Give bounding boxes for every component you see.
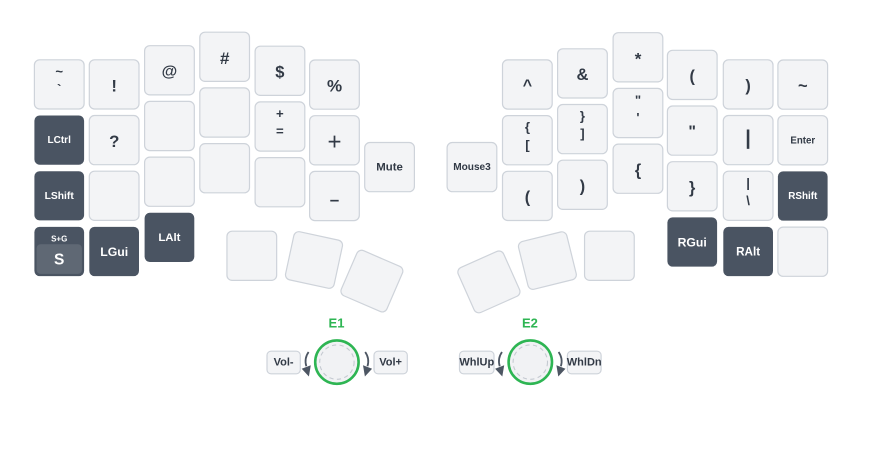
svg-text:{: {	[525, 120, 530, 135]
svg-text:": "	[635, 93, 641, 108]
svg-text:–: –	[330, 190, 339, 209]
svg-text:&: &	[577, 66, 589, 84]
svg-text:': '	[636, 110, 639, 125]
svg-text:(: (	[525, 189, 531, 207]
svg-text:|: |	[745, 128, 751, 150]
svg-text:?: ?	[109, 132, 119, 151]
svg-text:WhlUp: WhlUp	[459, 357, 494, 369]
svg-text:): )	[580, 177, 585, 195]
svg-text:!: !	[111, 77, 117, 96]
svg-text:LShift: LShift	[45, 191, 75, 202]
svg-text:|: |	[746, 175, 750, 190]
svg-text:RShift: RShift	[788, 191, 818, 202]
svg-text:*: *	[635, 49, 642, 68]
svg-text:=: =	[276, 124, 284, 139]
svg-text:~: ~	[798, 77, 808, 95]
svg-text:Mouse3: Mouse3	[453, 162, 491, 173]
svg-text:`: `	[57, 82, 61, 97]
svg-text:~: ~	[55, 64, 63, 79]
svg-text:{: {	[635, 161, 641, 179]
svg-text:^: ^	[523, 78, 532, 95]
svg-text:\: \	[746, 193, 750, 208]
svg-text:$: $	[275, 63, 284, 81]
svg-text:+: +	[276, 106, 284, 121]
svg-text:%: %	[327, 77, 342, 96]
svg-text:[: [	[525, 137, 530, 152]
svg-text:Mute: Mute	[376, 162, 403, 174]
svg-text:+: +	[327, 128, 341, 155]
svg-text:RGui: RGui	[678, 236, 707, 250]
svg-text:Enter: Enter	[790, 135, 815, 146]
svg-text:LAlt: LAlt	[158, 232, 180, 244]
svg-text:Vol+: Vol+	[379, 357, 402, 369]
svg-text:RAlt: RAlt	[736, 246, 760, 259]
svg-text:S+G: S+G	[51, 234, 67, 243]
svg-text:@: @	[162, 63, 178, 80]
svg-text:Vol-: Vol-	[274, 357, 294, 369]
svg-text:#: #	[220, 49, 230, 68]
svg-text:LGui: LGui	[100, 245, 128, 259]
svg-text:S: S	[54, 251, 64, 268]
svg-text:E2: E2	[522, 316, 538, 331]
svg-text:LCtrl: LCtrl	[48, 135, 72, 146]
svg-text:}: }	[580, 109, 585, 124]
svg-text:E1: E1	[329, 316, 345, 331]
svg-text:WhlDn: WhlDn	[567, 357, 602, 369]
svg-text:): )	[745, 77, 750, 95]
svg-text:(: (	[690, 68, 696, 86]
svg-text:]: ]	[580, 126, 584, 141]
svg-text:": "	[688, 124, 696, 141]
svg-text:}: }	[689, 179, 696, 197]
